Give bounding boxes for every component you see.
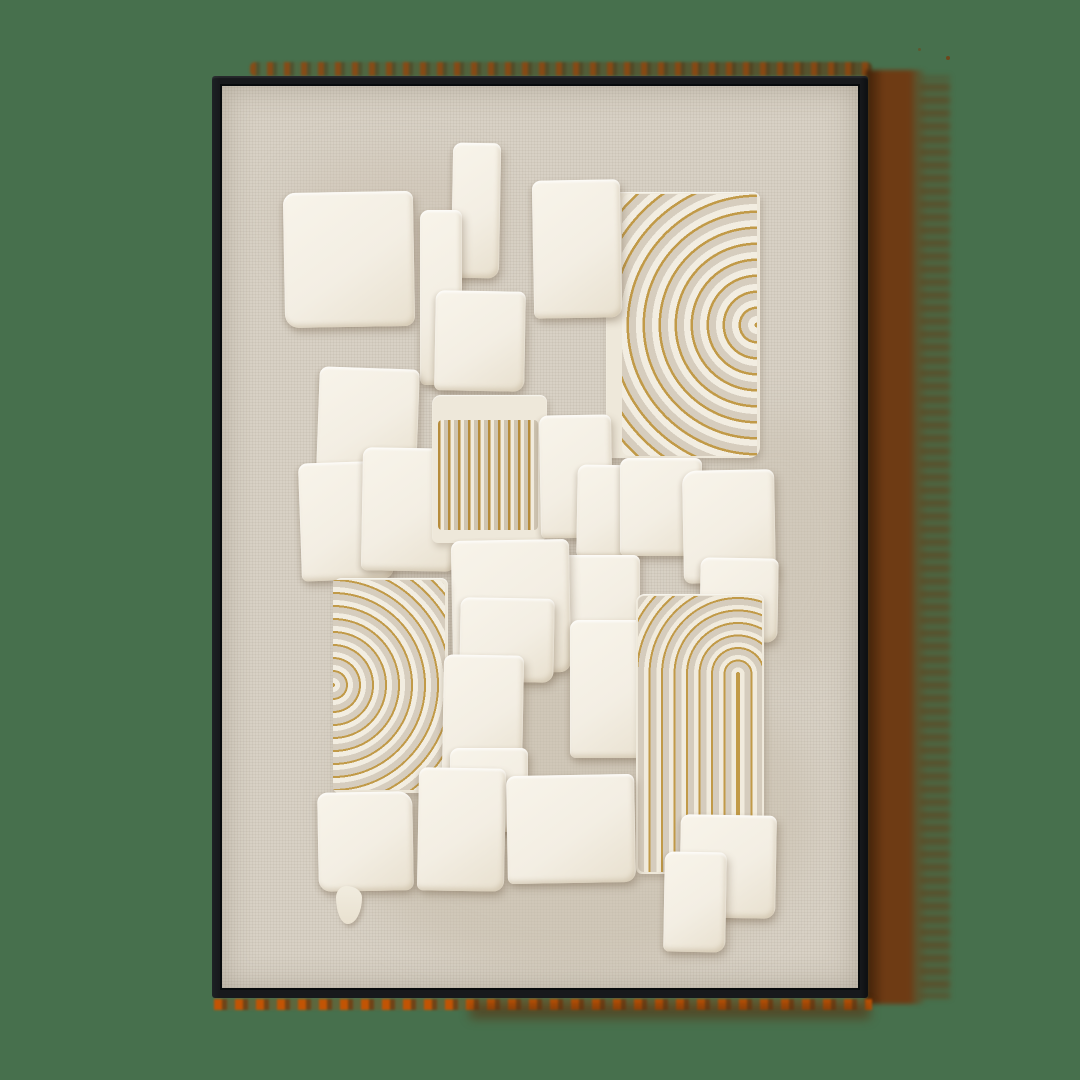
frame-top-shadow [250,62,872,76]
plaster-square [317,791,414,892]
gold-stripes-center [438,420,538,530]
plaster-square [663,851,727,952]
plaster-drip [336,886,362,924]
plaster-square [283,191,415,328]
gold-rings-top-right [622,194,757,456]
plaster-square [506,774,636,884]
shadow-speck [946,56,950,60]
gold-arches-crown [638,596,762,674]
gold-rings-bottom-left [333,580,445,790]
picture-frame [212,76,868,998]
linen-canvas [222,86,858,988]
shadow-speck [918,48,921,51]
plaster-square [532,179,622,319]
frame-bottom-shadow [470,1003,870,1019]
product-photo [0,0,1080,1080]
plaster-square [417,767,506,891]
plaster-square [434,290,526,392]
frame-right-shadow [866,70,926,1004]
